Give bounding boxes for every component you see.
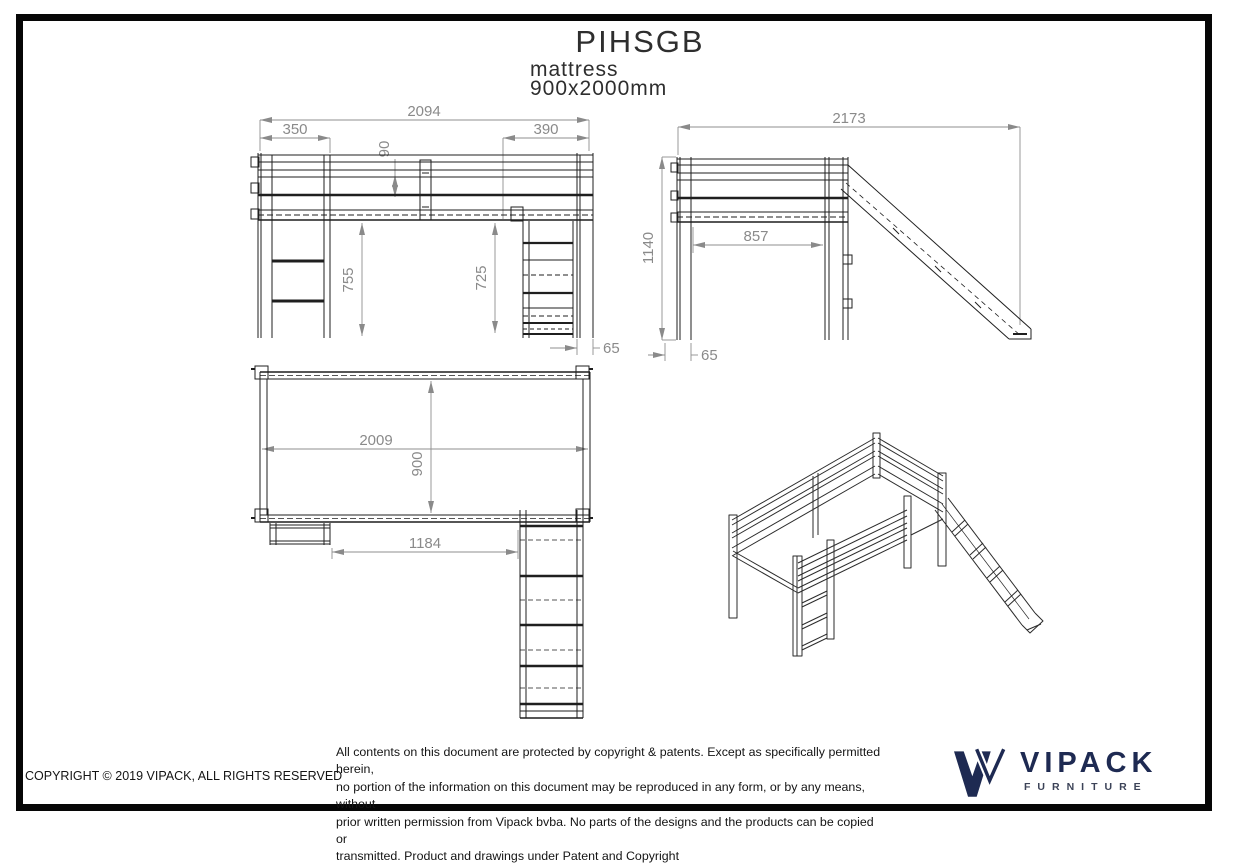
- front-elevation-drawing: 2094 350 390 90 755 725 65: [248, 103, 660, 375]
- dim-side-inner-depth: 857: [743, 228, 768, 245]
- dim-front-post-width: 65: [603, 340, 620, 357]
- dim-side-post-depth: 65: [701, 347, 718, 364]
- dim-front-overall-width: 2094: [407, 103, 440, 120]
- legal-line: All contents on this document are protec…: [336, 744, 881, 779]
- dim-side-overall-depth: 2173: [832, 110, 865, 127]
- dim-plan-bed-length: 2009: [359, 432, 392, 449]
- dim-plan-ladder-to-slide: 1184: [409, 535, 441, 552]
- copyright-notice: COPYRIGHT © 2019 VIPACK, ALL RIGHTS RESE…: [25, 769, 342, 783]
- dim-front-clearance-left: 755: [340, 267, 357, 292]
- vipack-logo: VIPACK FURNITURE: [948, 745, 1180, 803]
- brand-name: VIPACK: [1020, 747, 1157, 780]
- legal-line: transmitted. Product and drawings under …: [336, 848, 881, 865]
- dim-front-ladder-section: 350: [282, 121, 307, 138]
- dim-front-slide-section: 390: [533, 121, 558, 138]
- side-elevation-drawing: 2173 1140 857 65: [643, 103, 1045, 375]
- title-block: PIHSGB mattress 900x2000mm: [530, 24, 750, 98]
- vipack-logo-icon: [954, 748, 1008, 798]
- legal-line: no portion of the information on this do…: [336, 779, 881, 814]
- legal-line: prior written permission from Vipack bvb…: [336, 814, 881, 849]
- dim-front-clearance-right: 725: [473, 265, 490, 290]
- mattress-size: 900x2000mm: [530, 79, 750, 98]
- brand-tagline: FURNITURE: [1024, 781, 1148, 793]
- legal-text: All contents on this document are protec…: [336, 744, 881, 866]
- plan-view-drawing: 2009 900 1184: [248, 358, 634, 730]
- isometric-view-drawing: [705, 418, 1060, 693]
- dim-plan-bed-width: 900: [409, 451, 426, 476]
- product-code: PIHSGB: [530, 24, 750, 60]
- dim-side-overall-height: 1140: [640, 232, 657, 264]
